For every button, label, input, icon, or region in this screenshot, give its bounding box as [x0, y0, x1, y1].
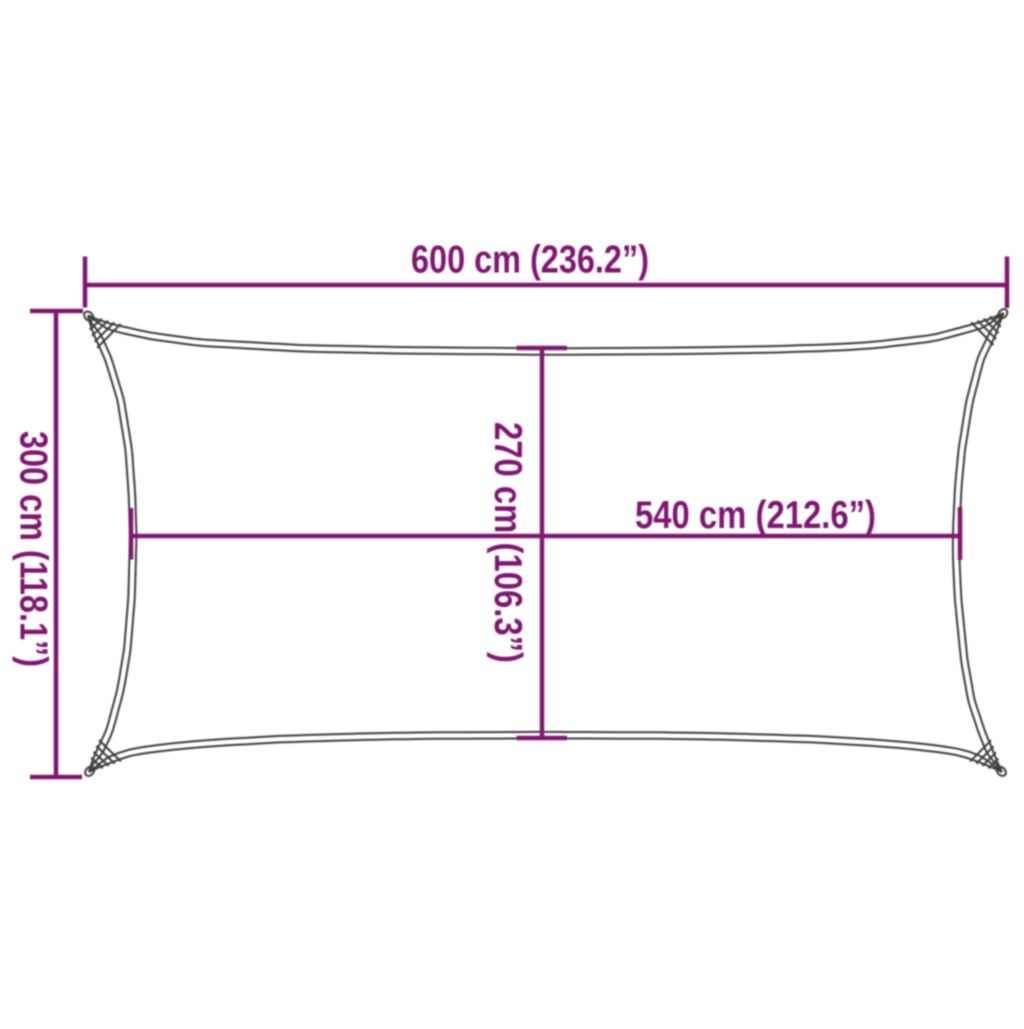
svg-text:300 cm (118.1”): 300 cm (118.1”): [12, 431, 55, 667]
svg-text:270 cm (106.3”): 270 cm (106.3”): [486, 422, 529, 663]
svg-text:540 cm (212.6”): 540 cm (212.6”): [635, 494, 876, 537]
svg-text:600 cm (236.2”): 600 cm (236.2”): [411, 239, 649, 282]
